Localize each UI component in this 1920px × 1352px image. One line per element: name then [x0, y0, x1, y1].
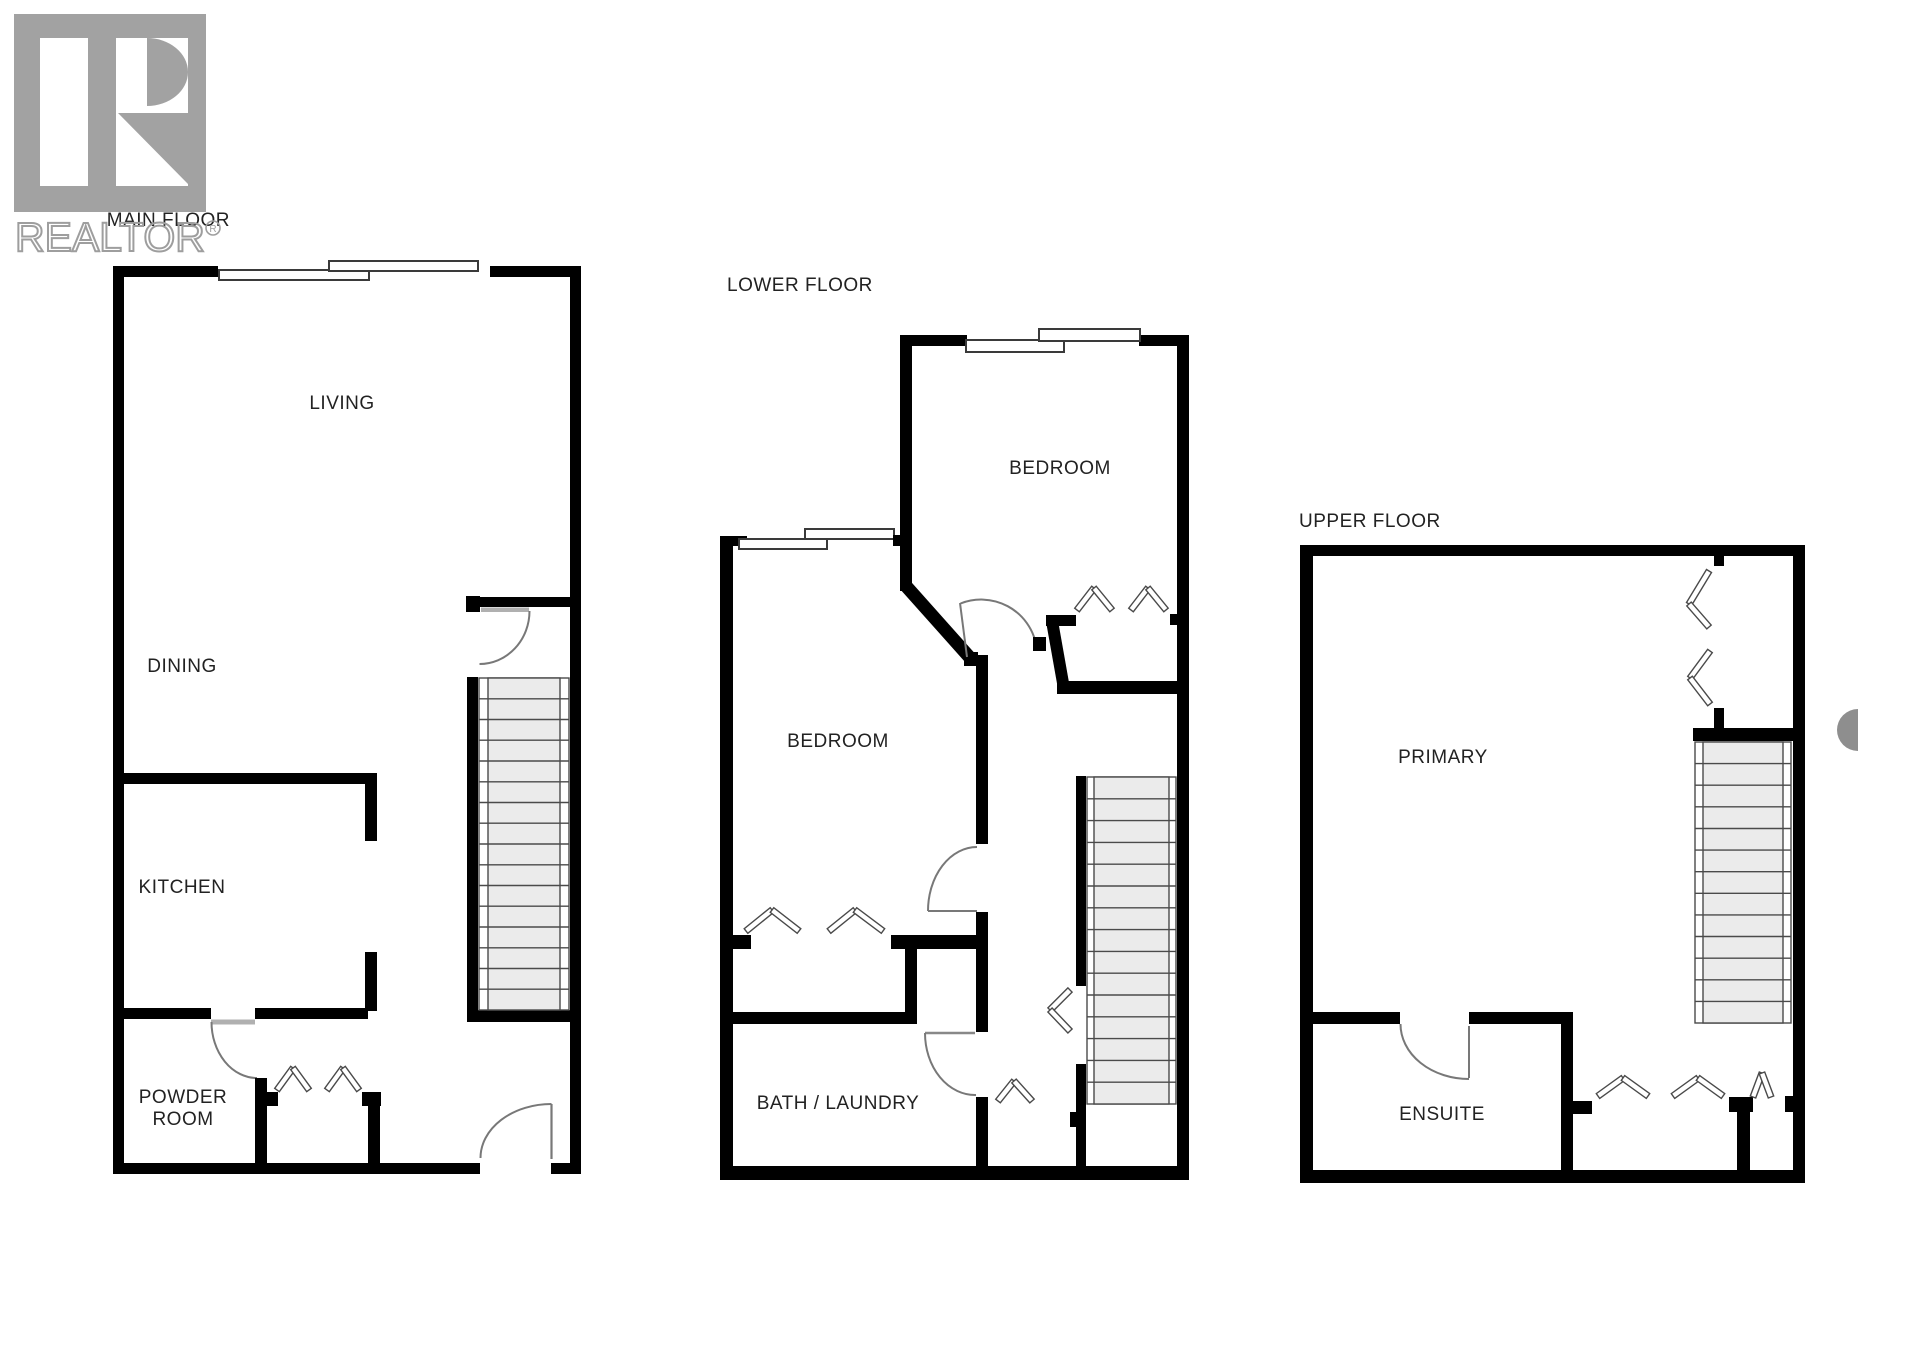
svg-text:ROOM: ROOM: [152, 1109, 213, 1130]
svg-text:BEDROOM: BEDROOM: [787, 731, 889, 752]
svg-text:KITCHEN: KITCHEN: [139, 877, 226, 898]
svg-text:PRIMARY: PRIMARY: [1398, 747, 1488, 768]
svg-text:UPPER FLOOR: UPPER FLOOR: [1299, 511, 1441, 532]
svg-text:ENSUITE: ENSUITE: [1399, 1104, 1485, 1125]
svg-text:BEDROOM: BEDROOM: [1009, 458, 1111, 479]
svg-text:LOWER FLOOR: LOWER FLOOR: [727, 275, 873, 296]
svg-text:POWDER: POWDER: [139, 1087, 228, 1108]
svg-text:LIVING: LIVING: [309, 393, 374, 414]
svg-text:R: R: [209, 224, 216, 235]
svg-text:BATH / LAUNDRY: BATH / LAUNDRY: [757, 1093, 920, 1114]
svg-text:DINING: DINING: [147, 656, 217, 677]
svg-text:REALTOR: REALTOR: [15, 214, 205, 260]
